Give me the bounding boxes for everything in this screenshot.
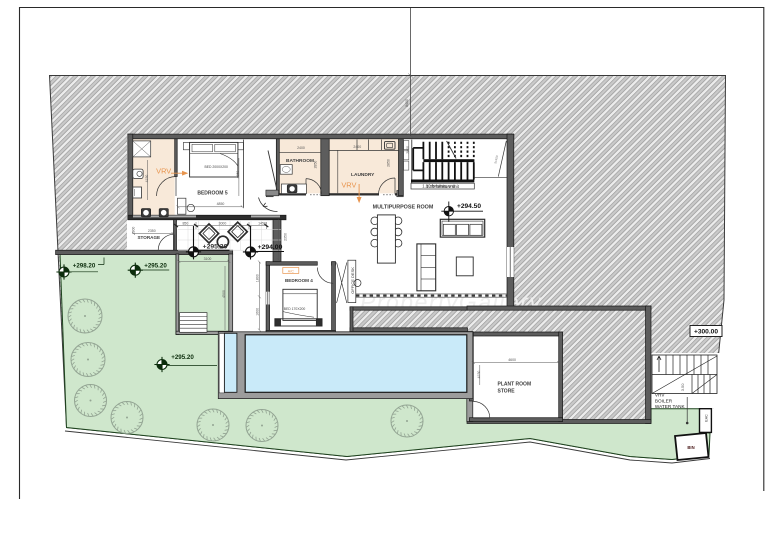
svg-text:BATHROOM: BATHROOM <box>286 158 314 164</box>
svg-text:2400: 2400 <box>353 145 361 149</box>
svg-text:4500: 4500 <box>222 290 226 298</box>
svg-text:LAUNDRY: LAUNDRY <box>351 172 375 178</box>
svg-text:4150: 4150 <box>477 371 481 379</box>
svg-text:2800: 2800 <box>406 146 410 154</box>
svg-text:2850: 2850 <box>314 161 318 169</box>
svg-text:STORE: STORE <box>498 388 516 394</box>
svg-text:VRV: VRV <box>156 167 171 176</box>
svg-text:8400: 8400 <box>405 99 409 107</box>
svg-text:STORAGE: STORAGE <box>137 235 160 240</box>
svg-text:BEDROOM 5: BEDROOM 5 <box>197 191 228 197</box>
svg-text:1450: 1450 <box>258 222 266 226</box>
svg-text:+298.20: +298.20 <box>73 263 96 270</box>
svg-text:1600: 1600 <box>255 308 259 316</box>
svg-text:1.00 furniture unit: 1.00 furniture unit <box>422 184 455 189</box>
svg-text:MULTIPURPOSE ROOM: MULTIPURPOSE ROOM <box>373 205 434 211</box>
svg-text:BED 170X200: BED 170X200 <box>284 307 306 311</box>
svg-text:3100: 3100 <box>204 257 212 261</box>
svg-text:+294.50: +294.50 <box>457 203 481 210</box>
svg-text:4850: 4850 <box>217 202 225 206</box>
svg-text:2350: 2350 <box>283 233 287 241</box>
svg-text:+295.20: +295.20 <box>144 263 167 270</box>
svg-text:3000: 3000 <box>219 222 227 226</box>
svg-text:+294.00: +294.00 <box>258 244 283 251</box>
svg-text:BED 2000X200: BED 2000X200 <box>205 165 228 169</box>
svg-text:PLANT ROOM: PLANT ROOM <box>498 381 532 387</box>
svg-text:3.50: 3.50 <box>680 383 685 392</box>
svg-text:+295.20: +295.20 <box>203 244 228 251</box>
svg-text:+295.20: +295.20 <box>171 354 194 361</box>
svg-text:EAC: EAC <box>705 414 709 422</box>
svg-text:4150: 4150 <box>145 175 149 183</box>
svg-text:1800: 1800 <box>132 227 136 235</box>
svg-text:2400: 2400 <box>297 146 305 150</box>
svg-text:VRV: VRV <box>341 181 356 190</box>
svg-text:BOILER: BOILER <box>655 398 673 403</box>
svg-text:4600: 4600 <box>508 358 516 362</box>
svg-text:VRV: VRV <box>655 393 665 398</box>
svg-text:2350: 2350 <box>148 229 156 233</box>
svg-text:+300.00: +300.00 <box>694 329 718 336</box>
svg-text:4150: 4150 <box>236 171 240 179</box>
svg-text:2850: 2850 <box>387 159 391 167</box>
svg-text:A/C: A/C <box>288 269 294 273</box>
svg-text:WATER TANK: WATER TANK <box>655 404 686 409</box>
svg-text:OFFICE DESK: OFFICE DESK <box>350 267 355 294</box>
svg-text:BEDROOM 4: BEDROOM 4 <box>285 278 313 283</box>
svg-text:1800: 1800 <box>255 274 259 282</box>
svg-text:BIN: BIN <box>687 445 694 450</box>
svg-text:850: 850 <box>182 222 188 226</box>
